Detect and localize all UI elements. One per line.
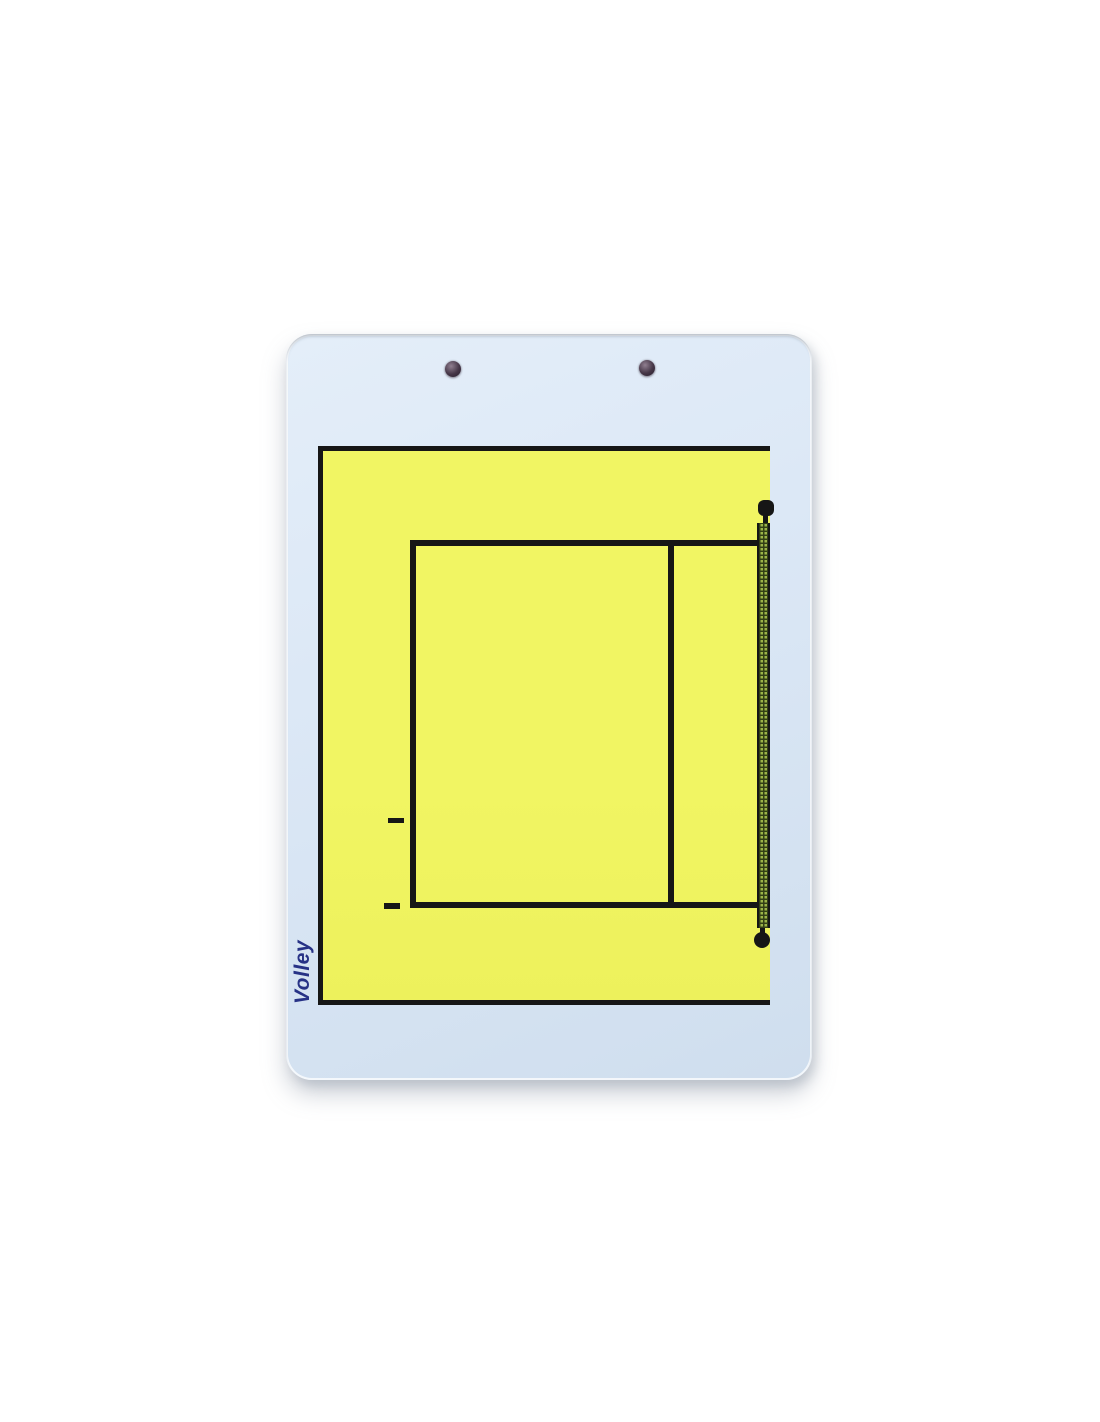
rivet-right [639, 360, 655, 376]
brand-label: Volley [291, 937, 315, 1007]
attack-line [668, 540, 674, 908]
service-mark-upper [388, 818, 404, 823]
service-mark-lower [384, 903, 400, 909]
rivet-left [445, 361, 461, 377]
court-outline [410, 540, 770, 908]
court-free-zone [318, 446, 770, 1005]
net-strip [757, 523, 770, 928]
product-photo: Volley [0, 0, 1100, 1422]
volleyball-coaching-board: Volley [286, 334, 812, 1080]
net-knob-bottom [754, 932, 770, 948]
